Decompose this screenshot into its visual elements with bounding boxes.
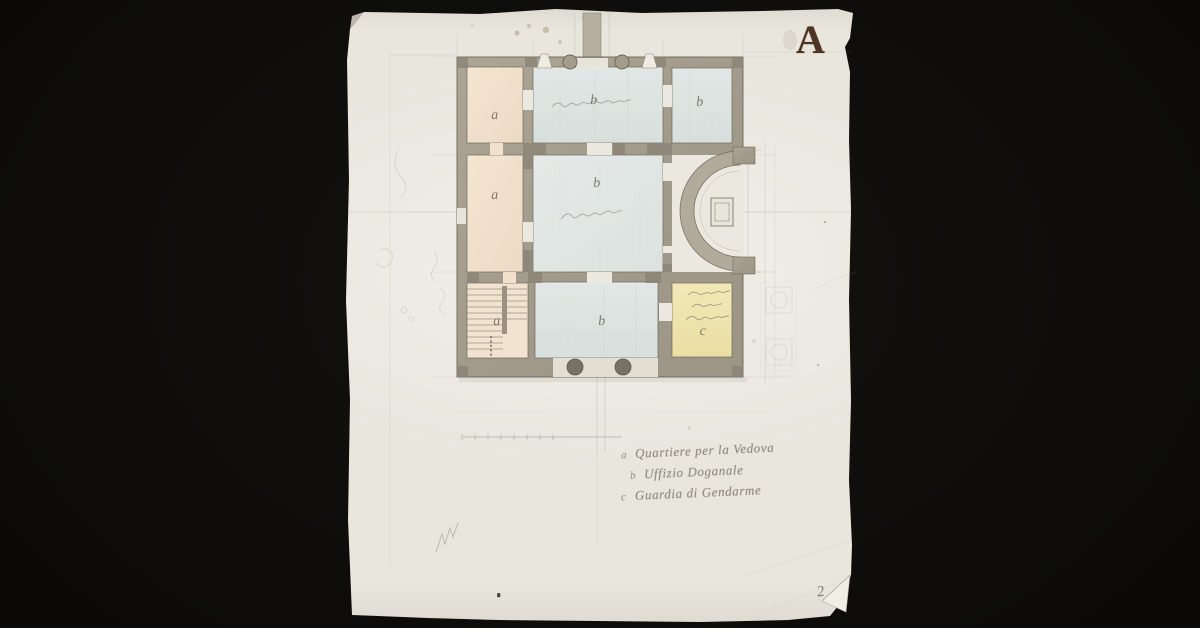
plate-letter: A	[796, 16, 826, 63]
legend-text-a: Quartiere per la Vedova	[635, 440, 775, 461]
room-label-b-vestibule: b	[590, 93, 598, 109]
room-label-a-upper-left: a	[491, 108, 499, 124]
legend-text-b: Uffizio Doganale	[644, 462, 744, 481]
room-label-b-upper-right: b	[696, 95, 704, 111]
room-label-b-lower: b	[598, 314, 606, 330]
legend: aQuartiere per la Vedova bUffizio Dogana…	[621, 438, 777, 508]
room-label-a-staircase: a	[493, 314, 501, 330]
room-label-c-lower-right: c	[699, 324, 706, 340]
scale-bar	[462, 434, 622, 441]
legend-marker-a: a	[621, 446, 636, 466]
legend-marker-b: b	[630, 466, 645, 486]
scanned-drawing-canvas: A 2 a b b a b a b c aQuartiere per la Ve…	[0, 0, 1200, 628]
apse-pedestal	[711, 198, 733, 226]
room-label-b-central-hall: b	[593, 176, 601, 192]
legend-text-c: Guardia di Gendarme	[635, 482, 762, 503]
legend-marker-c: c	[621, 488, 636, 508]
room-label-a-middle-left: a	[491, 188, 499, 204]
